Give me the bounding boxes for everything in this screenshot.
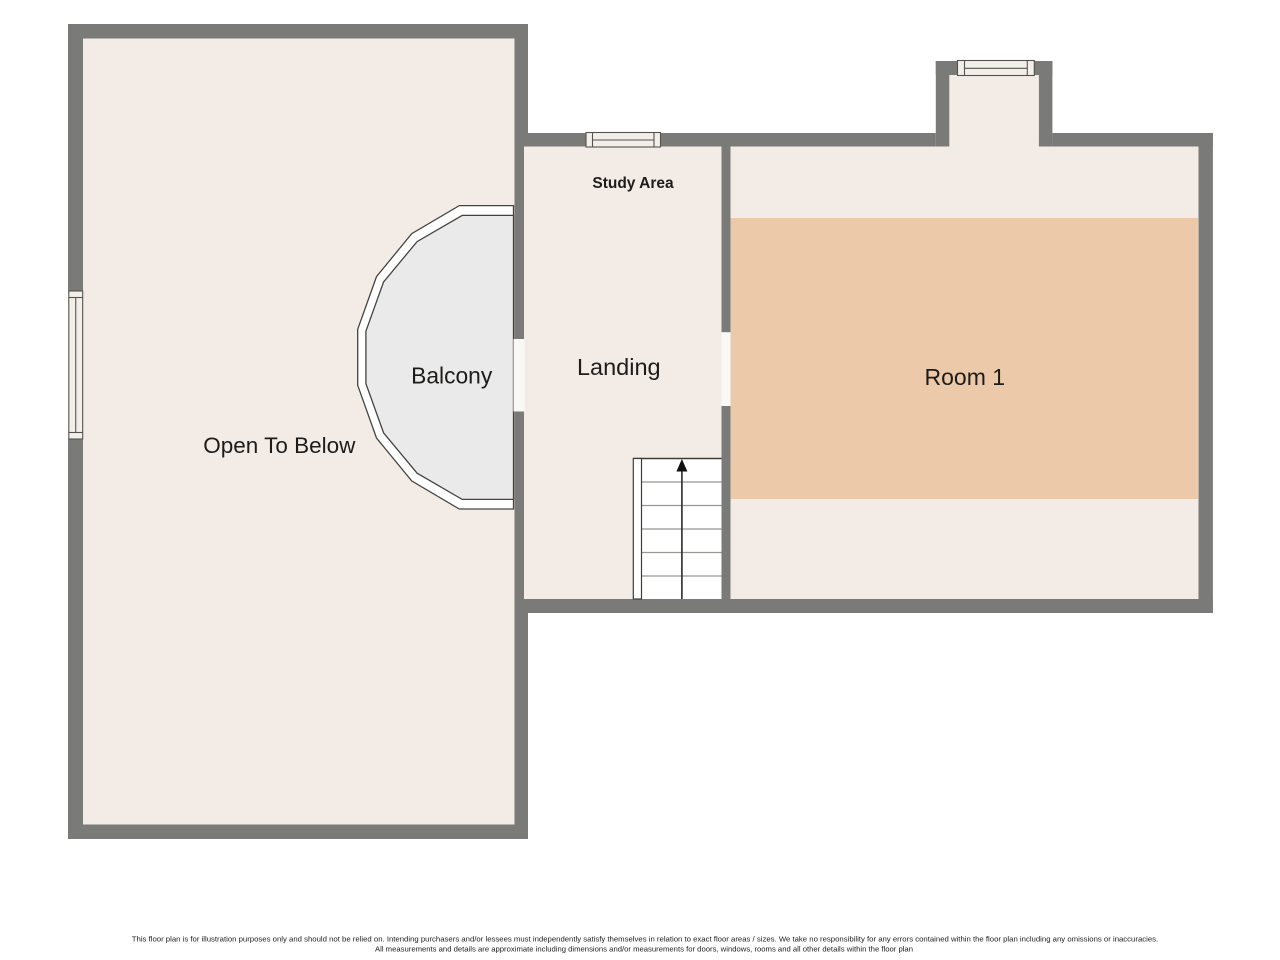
svg-text:This floor plan is for illustr: This floor plan is for illustration purp… bbox=[132, 935, 1158, 944]
svg-text:Room 1: Room 1 bbox=[925, 364, 1006, 390]
svg-text:Open To Below: Open To Below bbox=[203, 433, 356, 458]
svg-text:Balcony: Balcony bbox=[411, 362, 493, 388]
svg-text:All measurements and details a: All measurements and details are approxi… bbox=[375, 945, 913, 954]
svg-text:Landing: Landing bbox=[577, 354, 661, 380]
svg-text:Study Area: Study Area bbox=[592, 175, 674, 192]
